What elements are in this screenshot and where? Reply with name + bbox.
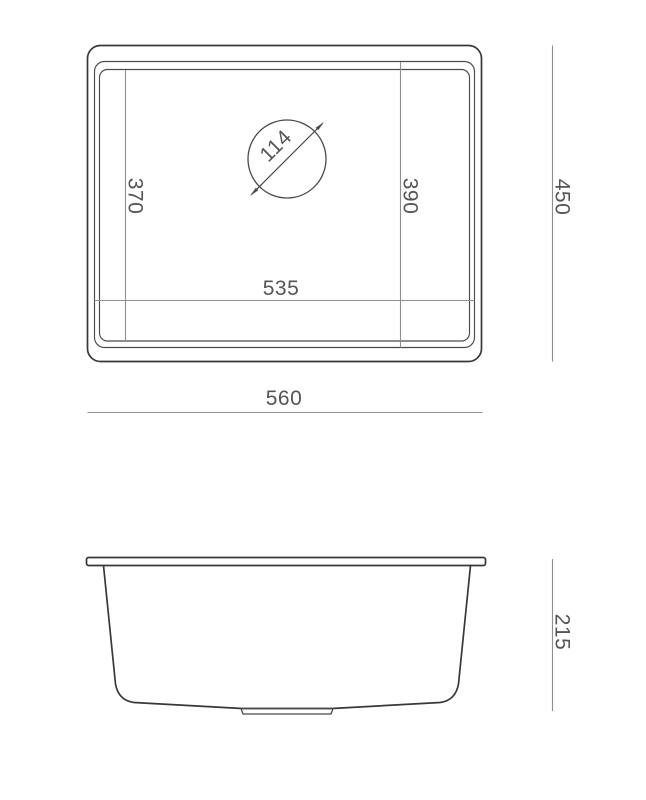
- dim-label-bowl-depth-right: 390: [399, 178, 422, 215]
- dim-label-bowl-width: 535: [263, 277, 300, 300]
- dim-label-overall-height: 215: [551, 614, 574, 651]
- top-view: 114 370 390 535 560 450: [88, 46, 574, 413]
- dim-label-overall-width: 560: [266, 387, 303, 410]
- sink-drawing-svg: 114 370 390 535 560 450: [0, 0, 646, 800]
- side-rim: [87, 558, 486, 566]
- sink-technical-drawing: 114 370 390 535 560 450: [0, 0, 646, 800]
- dim-label-bowl-depth-left: 370: [124, 178, 147, 215]
- side-bowl-profile: [104, 566, 471, 709]
- side-view: 215: [87, 558, 574, 715]
- dim-label-overall-depth: 450: [551, 179, 574, 216]
- dim-label-drain-diameter: 114: [255, 125, 296, 166]
